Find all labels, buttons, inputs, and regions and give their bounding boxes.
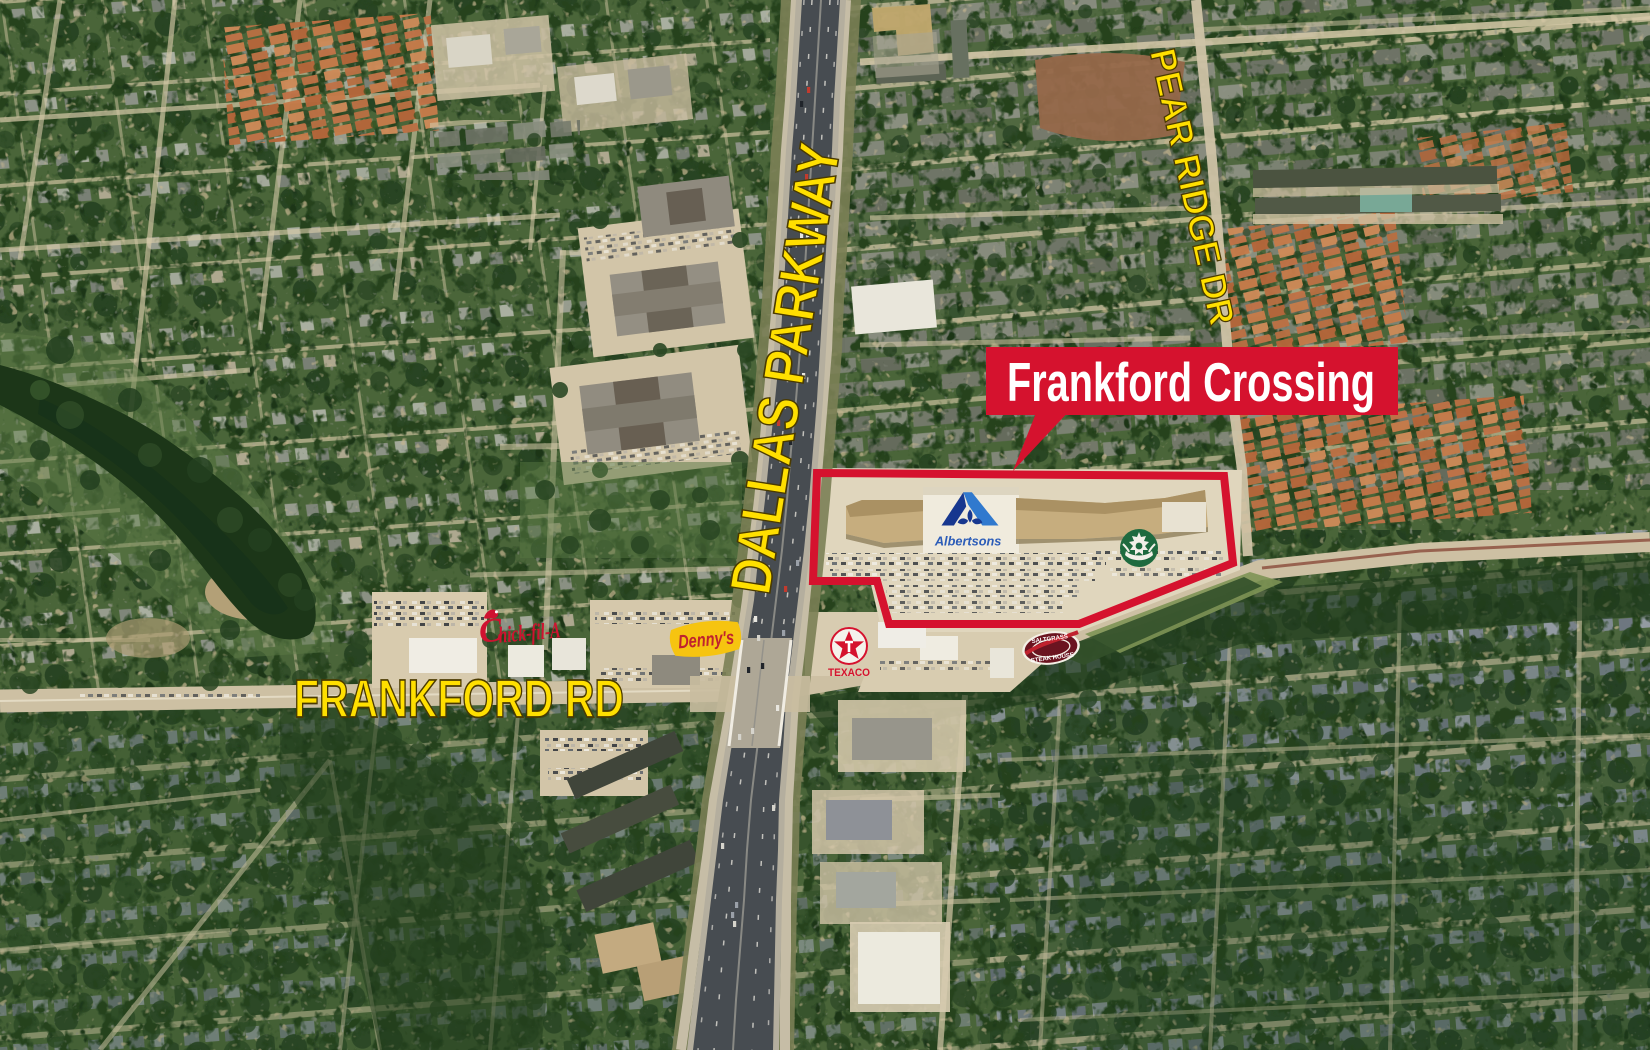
svg-text:FRANKFORD RD: FRANKFORD RD	[294, 669, 624, 729]
svg-text:TEXACO: TEXACO	[828, 667, 870, 679]
svg-text:Frankford Crossing: Frankford Crossing	[1007, 351, 1375, 413]
svg-text:Albertsons: Albertsons	[934, 533, 1001, 548]
